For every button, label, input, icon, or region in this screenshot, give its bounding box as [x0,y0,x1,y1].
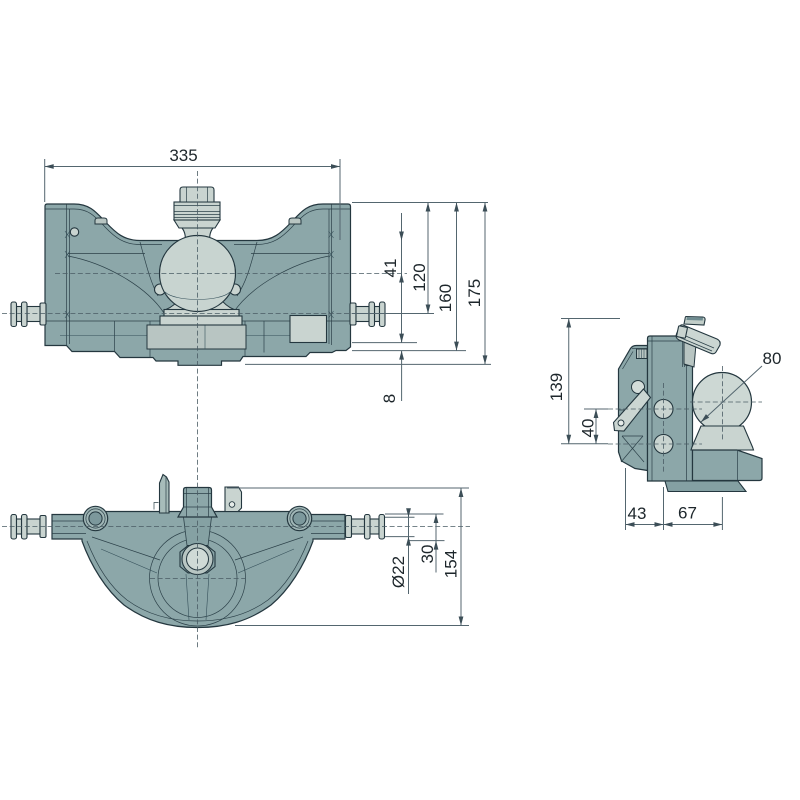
svg-text:80: 80 [763,349,782,368]
svg-text:154: 154 [442,550,461,578]
svg-text:67: 67 [678,504,697,523]
svg-text:335: 335 [169,146,197,165]
svg-text:160: 160 [436,284,455,312]
svg-text:40: 40 [579,419,598,438]
svg-text:41: 41 [381,259,400,278]
svg-text:Ø22: Ø22 [389,556,408,588]
svg-text:43: 43 [628,504,647,523]
svg-text:175: 175 [465,279,484,307]
svg-text:8: 8 [380,394,399,403]
svg-text:139: 139 [547,373,566,401]
svg-text:30: 30 [418,545,437,564]
svg-text:120: 120 [410,263,429,291]
